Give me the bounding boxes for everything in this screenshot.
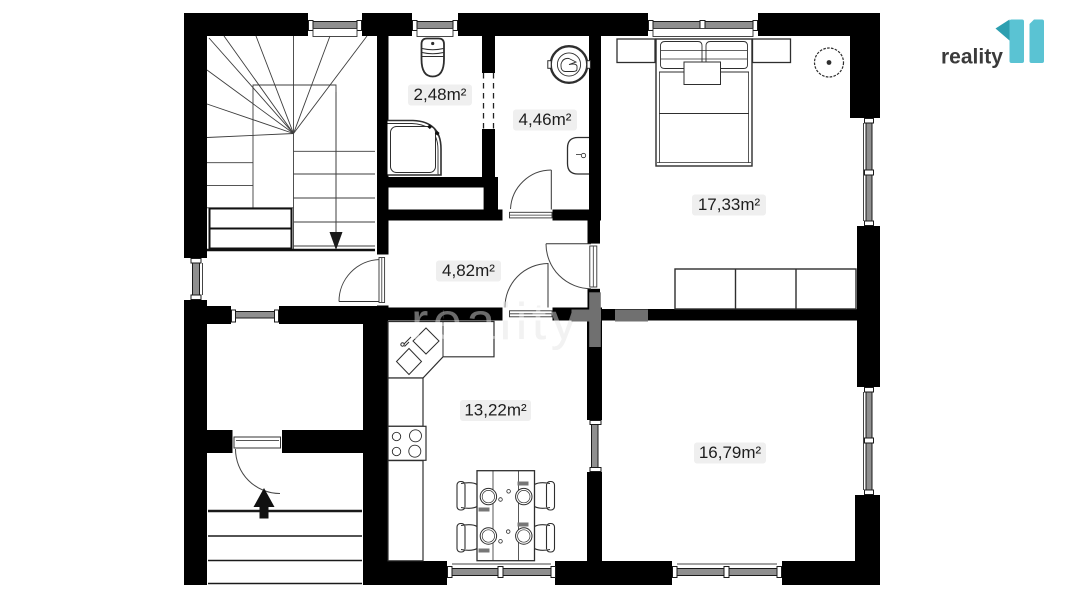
svg-text:2,48m²: 2,48m² — [414, 85, 467, 104]
svg-text:reality: reality — [941, 46, 1003, 69]
svg-text:4,46m²: 4,46m² — [519, 110, 572, 129]
svg-text:4,82m²: 4,82m² — [442, 261, 495, 280]
svg-text:reality: reality — [411, 293, 581, 351]
svg-text:16,79m²: 16,79m² — [699, 443, 762, 462]
svg-text:13,22m²: 13,22m² — [464, 401, 527, 420]
svg-text:17,33m²: 17,33m² — [698, 195, 761, 214]
